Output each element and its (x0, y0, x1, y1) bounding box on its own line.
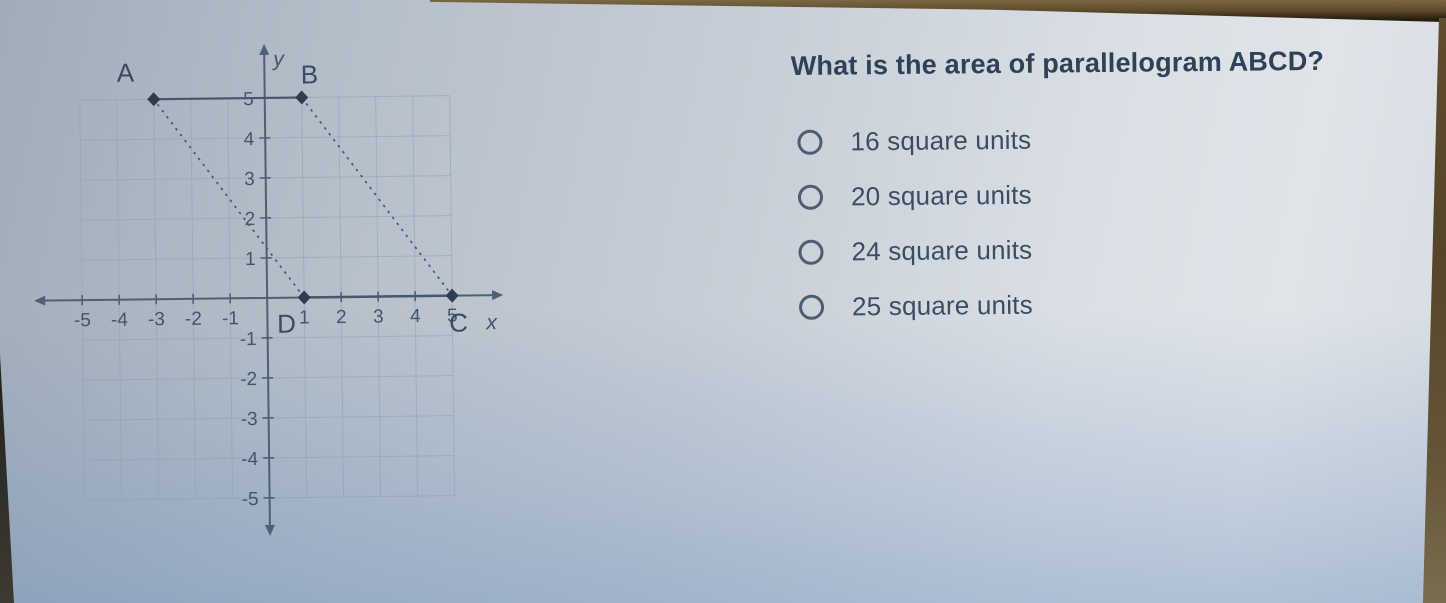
x-axis-letter: x (485, 311, 498, 334)
vertex-label-A: A (117, 58, 135, 88)
radio-button-icon[interactable] (798, 239, 823, 264)
answer-option-3[interactable]: 24 square units (792, 233, 1412, 265)
option-label: 20 square units (851, 179, 1032, 212)
x-tick-label: 3 (373, 306, 384, 327)
y-tick-label: 5 (243, 89, 254, 110)
vertex-dot-B (295, 90, 308, 104)
y-tick-label: 2 (244, 209, 255, 230)
answer-option-2[interactable]: 20 square units (792, 178, 1412, 210)
x-tick-label: 2 (336, 307, 347, 328)
radio-button-icon[interactable] (799, 294, 824, 319)
y-tick-label: 4 (244, 129, 255, 150)
y-tick-label: -3 (241, 409, 258, 430)
x-tick-label: -4 (111, 310, 129, 331)
y-tick-label: -5 (242, 489, 259, 510)
coordinate-plane-svg: -5-4-3-2-11234554321-1-2-3-4-5 ABCD y x (0, 0, 523, 573)
radio-button-icon[interactable] (798, 184, 823, 209)
vertex-label-B: B (301, 59, 319, 89)
x-axis-left-arrow-icon (34, 296, 45, 306)
answer-option-1[interactable]: 16 square units (791, 123, 1411, 155)
question-text: What is the area of parallelogram ABCD? (791, 43, 1411, 83)
y-axis-letter: y (271, 48, 285, 71)
axes (31, 41, 506, 539)
photo-desk-edge-top (430, 0, 1446, 24)
y-tick-label: -4 (241, 449, 259, 470)
option-label: 24 square units (851, 234, 1032, 267)
option-label: 25 square units (852, 289, 1033, 322)
photo-desk-edge-right (1414, 18, 1446, 603)
y-axis-bottom-arrow-icon (265, 525, 275, 536)
y-tick-label: -2 (240, 369, 257, 390)
coordinate-plane: -5-4-3-2-11234554321-1-2-3-4-5 ABCD y x (0, 0, 523, 573)
x-axis-right-arrow-icon (492, 290, 503, 300)
question-panel: What is the area of parallelogram ABCD? … (791, 43, 1414, 349)
x-tick-label: 4 (410, 306, 421, 327)
vertex-dot-D (298, 290, 311, 304)
x-tick-label: -1 (222, 308, 239, 329)
x-tick-label: -3 (148, 309, 165, 330)
y-tick-label: -1 (240, 329, 257, 350)
x-tick-label: -5 (74, 310, 91, 331)
quiz-screen: -5-4-3-2-11234554321-1-2-3-4-5 ABCD y x … (0, 0, 1446, 603)
radio-button-icon[interactable] (797, 129, 822, 154)
y-tick-label: 3 (244, 169, 255, 190)
x-tick-label: -2 (185, 309, 202, 330)
option-label: 16 square units (850, 124, 1031, 157)
side-AB (154, 97, 302, 99)
vertex-label-D: D (277, 309, 296, 339)
y-tick-label: 1 (245, 249, 256, 270)
vertex-label-C: C (449, 307, 468, 337)
answer-option-4[interactable]: 25 square units (793, 288, 1413, 320)
answer-options: 16 square units 20 square units 24 squar… (791, 123, 1413, 320)
y-axis-top-arrow-icon (259, 44, 269, 55)
side-CD (304, 296, 452, 298)
x-tick-label: 1 (299, 307, 310, 328)
